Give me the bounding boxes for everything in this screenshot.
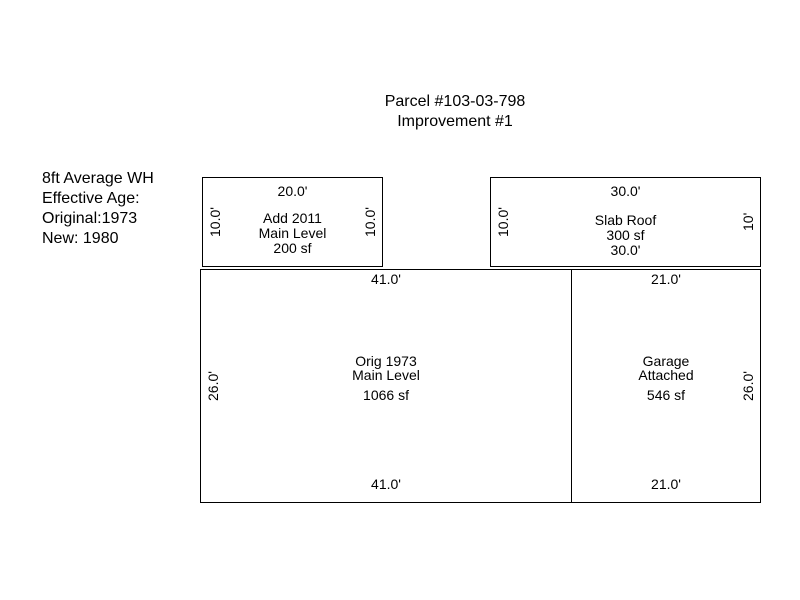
sketch-box-orig-main-level: 41.0' 26.0' 41.0' Orig 1973 Main Level 1…	[200, 269, 572, 503]
parcel-number-title: Parcel #103-03-798	[255, 92, 655, 112]
dim-label-top: 41.0'	[201, 271, 571, 287]
box-area-label: 300 sf	[491, 228, 760, 243]
box-label-line: Garage	[572, 354, 760, 368]
box-area-label: 200 sf	[203, 241, 382, 256]
improvement-number-title: Improvement #1	[255, 112, 655, 132]
box-label: Slab Roof 300 sf 30.0'	[491, 213, 760, 258]
dim-label-bottom: 21.0'	[572, 476, 760, 492]
box-area-label: 546 sf	[572, 388, 760, 402]
box-label-line: Main Level	[203, 226, 382, 241]
box-label-line: Attached	[572, 368, 760, 382]
box-label: Add 2011 Main Level 200 sf	[203, 211, 382, 256]
box-label-line: Main Level	[201, 368, 571, 382]
property-info-panel: 8ft Average WH Effective Age: Original:1…	[42, 169, 154, 249]
dim-label-bottom: 41.0'	[201, 476, 571, 492]
box-label-line: Orig 1973	[201, 354, 571, 368]
box-label: Garage Attached 546 sf	[572, 354, 760, 402]
dim-label-top: 20.0'	[203, 183, 382, 199]
original-year-text: Original:1973	[42, 209, 154, 229]
dim-label-top: 21.0'	[572, 271, 760, 287]
box-label-line: Add 2011	[203, 211, 382, 226]
dim-label-bottom: 30.0'	[491, 243, 760, 258]
box-area-label: 1066 sf	[201, 388, 571, 402]
sketch-canvas: Parcel #103-03-798 Improvement #1 8ft Av…	[0, 0, 800, 600]
page-title: Parcel #103-03-798 Improvement #1	[255, 92, 655, 132]
new-year-text: New: 1980	[42, 229, 154, 249]
dim-label-top: 30.0'	[491, 183, 760, 199]
effective-age-label: Effective Age:	[42, 189, 154, 209]
wall-height-text: 8ft Average WH	[42, 169, 154, 189]
sketch-box-add-2011: 20.0' 10.0' 10.0' Add 2011 Main Level 20…	[202, 177, 383, 267]
sketch-box-garage: 21.0' 26.0' 21.0' Garage Attached 546 sf	[571, 269, 761, 503]
sketch-box-slab-roof: 30.0' 10.0' 10' Slab Roof 300 sf 30.0'	[490, 177, 761, 267]
box-label: Orig 1973 Main Level 1066 sf	[201, 354, 571, 402]
box-label-line: Slab Roof	[491, 213, 760, 228]
